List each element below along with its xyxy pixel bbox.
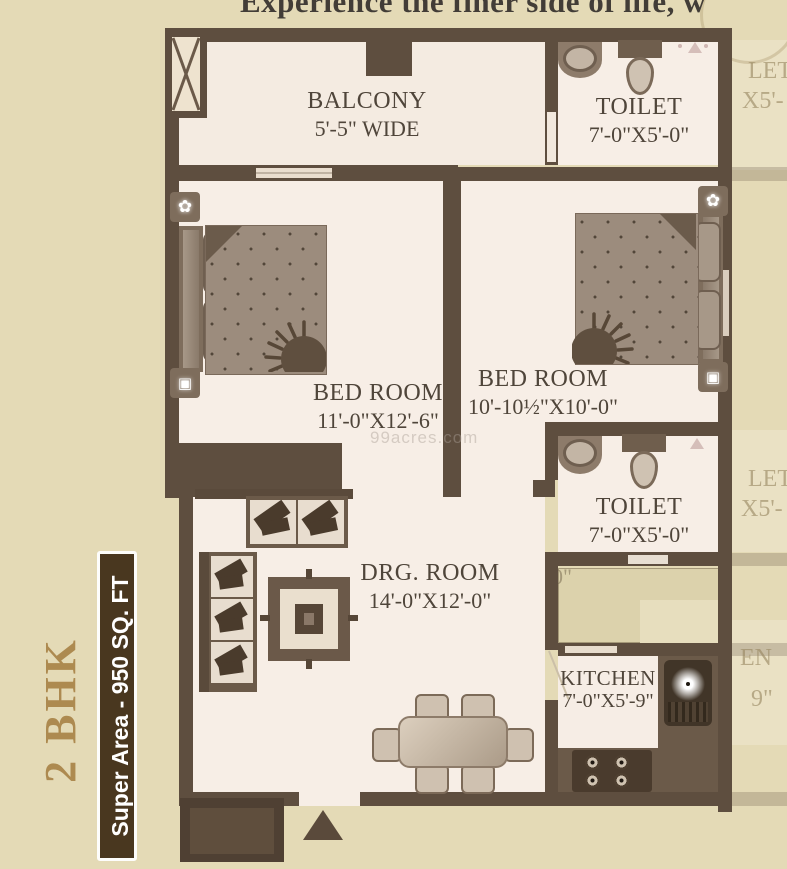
wall-bedroom-right-top (458, 167, 718, 181)
adjacent-toilet-dim-fragment: X5'- (741, 496, 783, 523)
room-dim: 7'-0"X5'-0" (558, 522, 720, 547)
adjacent-toilet-label-fragment: LET (748, 58, 787, 85)
rug-tick (306, 659, 312, 669)
room-dim: 14'-0"X12'-0" (330, 588, 530, 613)
stove-icon (572, 750, 652, 792)
shaft-cross-icon (172, 37, 200, 111)
wall-unit-right-mid (545, 566, 558, 650)
adjacent-wall-stub (732, 792, 787, 806)
balcony-door-line (256, 172, 332, 174)
stove-burner (585, 755, 600, 770)
shower-symbol-icon (690, 438, 704, 449)
adjacent-toilet-label-fragment: LET (748, 466, 787, 493)
adjacent-kitchen-label-fragment: EN (740, 645, 772, 672)
stove-burner (614, 755, 629, 770)
room-name: TOILET (558, 94, 720, 122)
centre-table-top (304, 613, 314, 625)
toilet-top-label: TOILET 7'-0"X5'-0" (558, 94, 720, 147)
dining-chair (415, 764, 449, 794)
room-name: BED ROOM (445, 366, 641, 394)
sun-decor-icon (572, 298, 642, 364)
basin-icon (563, 439, 597, 467)
dining-chair (461, 764, 495, 794)
sink-drainboard (668, 702, 708, 722)
rug-tick (260, 615, 270, 621)
room-name: DRG. ROOM (330, 560, 530, 588)
ceiling-light-icon: ✿ (170, 192, 200, 222)
adjacent-wall-stub (732, 167, 787, 181)
rug-tick (306, 569, 312, 579)
blanket-fold (660, 214, 696, 250)
room-dim: 10'-10½"X10'-0" (445, 394, 641, 419)
switchboard-icon: ▣ (170, 368, 200, 398)
marketing-tagline: Experience the finer side of life, w (240, 0, 706, 20)
entrance-threshold (299, 792, 360, 806)
dining-table (398, 716, 508, 768)
floor-plan-page: LET X5'- LET X5'- EN 9" Experience the f… (0, 0, 787, 869)
wall-kitchen-left (545, 700, 558, 792)
switchboard-icon: ▣ (698, 362, 728, 392)
stove-burner (585, 773, 600, 788)
wall-toilet-mid-left (545, 436, 558, 480)
wc-tank (622, 434, 666, 452)
shower-symbol-icon (688, 42, 702, 53)
dining-chair (504, 728, 534, 762)
wall-right (718, 28, 732, 812)
adjacent-kitchen-dim-fragment: 9" (751, 686, 773, 713)
super-area-badge: Super Area - 950 SQ. FT (97, 551, 137, 861)
adjacent-toilet-dim-fragment: X5'- (742, 88, 784, 115)
entrance-arrow-icon (303, 810, 343, 840)
room-name: BALCONY (252, 88, 482, 116)
room-name: TOILET (558, 494, 720, 522)
wc-tank (618, 40, 662, 58)
sink-drain-dot (686, 682, 690, 686)
room-name: KITCHEN (552, 666, 664, 690)
toilet-top-door-opening (547, 112, 556, 162)
wall-bottom-right (360, 792, 732, 806)
bed-headboard-inner (183, 230, 199, 368)
shower-dot (704, 44, 708, 48)
sofa-back (199, 552, 209, 692)
toilet-mid-vent-opening (628, 555, 668, 564)
stove-burner (614, 773, 629, 788)
adjacent-wall-stub (732, 553, 787, 566)
lobby-block-inner (190, 808, 274, 854)
basin-icon (563, 45, 597, 72)
balcony-label: BALCONY 5'-5" WIDE (252, 88, 482, 141)
drawing-room-label: DRG. ROOM 14'-0"X12'-0" (330, 560, 530, 613)
wall-balcony-pier (366, 42, 412, 76)
rug-tick (348, 615, 358, 621)
sun-decor-icon (256, 306, 326, 372)
toilet-mid-label: TOILET 7'-0"X5'-0" (558, 494, 720, 547)
room-dim: 7'-0"X5'-0" (558, 122, 720, 147)
adjacent-room-patch (732, 620, 787, 745)
wall-hall-corner (533, 480, 555, 497)
blanket-fold (206, 226, 242, 262)
kitchen-door-leaf (565, 646, 617, 653)
kitchen-label: KITCHEN 7'-0"X5'-9" (552, 666, 664, 713)
bedroom-right-label: BED ROOM 10'-10½"X10'-0" (445, 366, 641, 419)
wall-drawing-room-left (179, 497, 193, 806)
shower-dot (678, 44, 682, 48)
room-dim: 5'-5" WIDE (252, 116, 482, 141)
bhk-title: 2 BHK (31, 617, 91, 803)
wall-central (443, 179, 461, 497)
room-dim: 7'-0"X5'-9" (552, 690, 664, 713)
ceiling-light-icon: ✿ (698, 186, 728, 216)
